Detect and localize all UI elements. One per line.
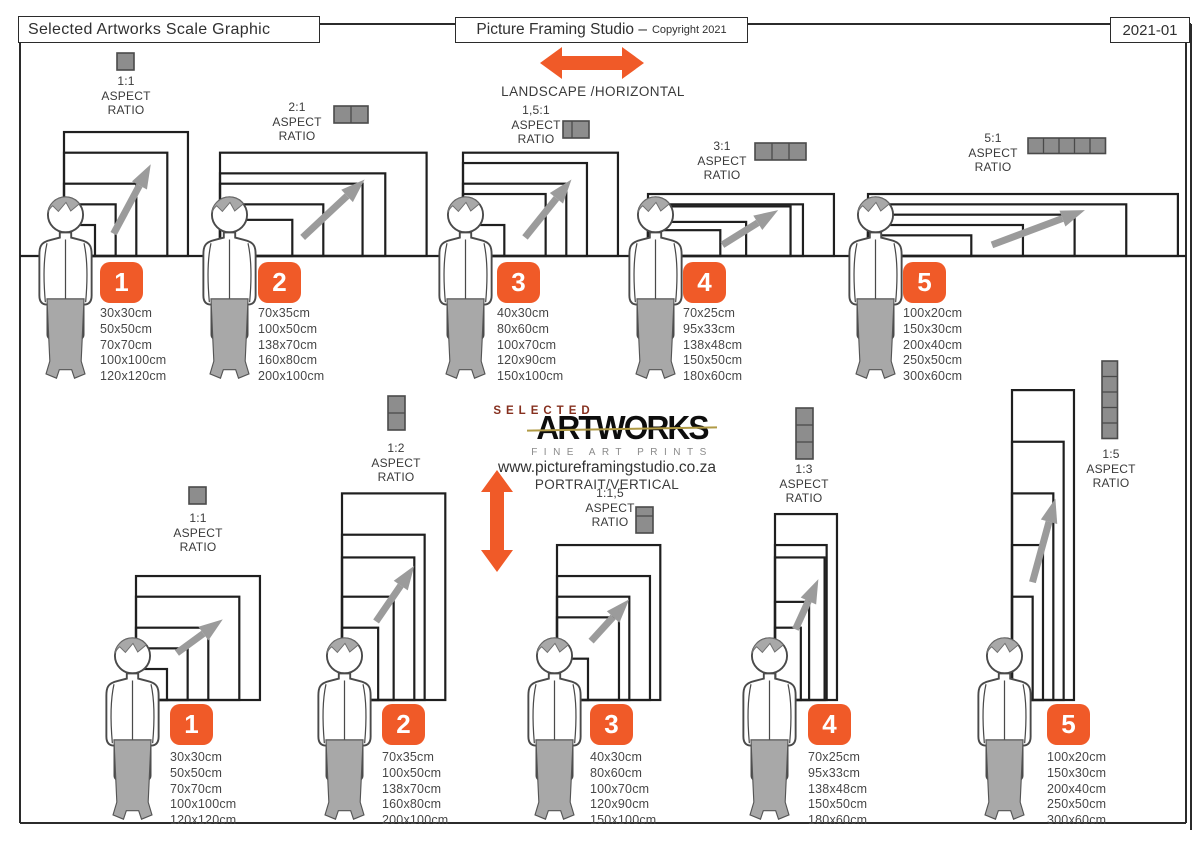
- size-item: 150x30cm: [1047, 766, 1106, 782]
- size-item: 100x50cm: [258, 322, 324, 338]
- group-number-badge: 4: [808, 704, 851, 745]
- aspect-ratio-icon: [117, 53, 134, 70]
- size-list: 70x25cm95x33cm138x48cm150x50cm180x60cm: [683, 306, 742, 385]
- scale-arrow-shaft: [376, 586, 401, 622]
- copyright-text: Copyright 2021: [652, 24, 727, 36]
- size-item: 138x70cm: [382, 782, 448, 798]
- group-number-badge: 1: [170, 704, 213, 745]
- size-item: 100x70cm: [590, 782, 656, 798]
- ratio-word: RATIO: [476, 132, 596, 147]
- scale-arrow: [591, 599, 629, 641]
- ratio-icon-body: [1102, 361, 1118, 439]
- group-number-badge: 3: [590, 704, 633, 745]
- ratio-word: RATIO: [1051, 476, 1171, 491]
- size-item: 250x50cm: [903, 353, 962, 369]
- size-item: 70x25cm: [683, 306, 742, 322]
- size-item: 80x60cm: [497, 322, 563, 338]
- ratio-word: ASPECT: [744, 477, 864, 492]
- size-item: 120x90cm: [497, 353, 563, 369]
- size-item: 250x50cm: [1047, 797, 1106, 813]
- ratio-word: RATIO: [662, 168, 782, 183]
- scale-arrow-head: [801, 579, 819, 604]
- landscape-direction-label: LANDSCAPE /HORIZONTAL: [501, 84, 685, 99]
- size-item: 180x60cm: [683, 369, 742, 385]
- size-item: 150x50cm: [808, 797, 867, 813]
- group-number-badge: 1: [100, 262, 143, 303]
- size-item: 30x30cm: [170, 750, 236, 766]
- portrait-group-5: [1012, 361, 1118, 700]
- scale-arrow: [722, 210, 778, 245]
- frame-rect: [463, 153, 618, 256]
- ratio-value: 1:1: [138, 511, 258, 526]
- ratio-word: ASPECT: [662, 154, 782, 169]
- size-item: 100x20cm: [903, 306, 962, 322]
- size-item: 40x30cm: [590, 750, 656, 766]
- size-item: 180x60cm: [808, 813, 867, 829]
- aspect-ratio-label: 1,5:1ASPECTRATIO: [476, 103, 596, 147]
- person-figure: [528, 638, 580, 819]
- size-item: 100x100cm: [170, 797, 236, 813]
- size-item: 138x70cm: [258, 338, 324, 354]
- person-figure: [203, 197, 255, 378]
- ratio-value: 1:3: [744, 462, 864, 477]
- aspect-ratio-label: 1:2ASPECTRATIO: [336, 441, 456, 485]
- size-item: 150x30cm: [903, 322, 962, 338]
- ratio-icon-body: [189, 487, 206, 504]
- aspect-ratio-icon: [189, 487, 206, 504]
- frame-rect: [64, 132, 188, 256]
- size-item: 120x120cm: [100, 369, 166, 385]
- ratio-word: ASPECT: [550, 501, 670, 516]
- group-number-badge: 2: [382, 704, 425, 745]
- scale-arrow-shaft: [722, 223, 757, 245]
- studio-title-box: Picture Framing Studio – Copyright 2021: [455, 17, 748, 43]
- ratio-word: RATIO: [336, 470, 456, 485]
- size-list: 70x35cm100x50cm138x70cm160x80cm200x100cm: [258, 306, 324, 385]
- size-item: 138x48cm: [683, 338, 742, 354]
- ratio-word: RATIO: [138, 540, 258, 555]
- edition-code-box: 2021-01: [1110, 17, 1190, 43]
- size-item: 100x100cm: [100, 353, 166, 369]
- aspect-ratio-label: 3:1ASPECTRATIO: [662, 139, 782, 183]
- ratio-value: 1,5:1: [476, 103, 596, 118]
- size-item: 138x48cm: [808, 782, 867, 798]
- aspect-ratio-label: 1:1ASPECTRATIO: [138, 511, 258, 555]
- ratio-word: RATIO: [237, 129, 357, 144]
- size-list: 100x20cm150x30cm200x40cm250x50cm300x60cm: [1047, 750, 1106, 829]
- size-item: 95x33cm: [808, 766, 867, 782]
- size-item: 70x25cm: [808, 750, 867, 766]
- aspect-ratio-icon: [388, 396, 405, 430]
- ratio-value: 1:1,5: [550, 486, 670, 501]
- scale-arrow-shaft: [303, 196, 347, 237]
- size-item: 300x60cm: [1047, 813, 1106, 829]
- scale-arrow-head: [132, 164, 151, 189]
- ratio-icon-body: [796, 408, 813, 459]
- size-item: 70x70cm: [100, 338, 166, 354]
- size-item: 300x60cm: [903, 369, 962, 385]
- scale-arrow-head: [1041, 499, 1057, 524]
- ratio-word: ASPECT: [237, 115, 357, 130]
- ratio-word: RATIO: [66, 103, 186, 118]
- size-item: 200x40cm: [903, 338, 962, 354]
- size-item: 150x50cm: [683, 353, 742, 369]
- portrait-group-3: [557, 507, 660, 700]
- size-item: 30x30cm: [100, 306, 166, 322]
- ratio-word: ASPECT: [66, 89, 186, 104]
- size-item: 200x40cm: [1047, 782, 1106, 798]
- portrait-direction-arrow-icon: [481, 470, 513, 572]
- size-item: 120x120cm: [170, 813, 236, 829]
- person-figure: [318, 638, 370, 819]
- ratio-word: ASPECT: [138, 526, 258, 541]
- ratio-value: 2:1: [237, 100, 357, 115]
- size-list: 30x30cm50x50cm70x70cm100x100cm120x120cm: [100, 306, 166, 385]
- page-title: Selected Artworks Scale Graphic: [28, 21, 270, 39]
- group-number-badge: 3: [497, 262, 540, 303]
- logo-tagline: FINE ART PRINTS: [531, 447, 713, 458]
- scale-arrow: [795, 579, 818, 629]
- ratio-word: ASPECT: [1051, 462, 1171, 477]
- ratio-value: 1:5: [1051, 447, 1171, 462]
- size-item: 150x100cm: [497, 369, 563, 385]
- size-item: 70x35cm: [258, 306, 324, 322]
- scale-arrow: [376, 566, 414, 622]
- scale-arrow-shaft: [177, 634, 203, 653]
- group-number-badge: 2: [258, 262, 301, 303]
- aspect-ratio-label: 1:5ASPECTRATIO: [1051, 447, 1171, 491]
- ratio-word: ASPECT: [336, 456, 456, 471]
- group-number-badge: 5: [903, 262, 946, 303]
- scale-arrow-head: [1059, 210, 1084, 226]
- size-item: 50x50cm: [100, 322, 166, 338]
- website-url: www.pictureframingstudio.co.za: [498, 459, 716, 477]
- ratio-value: 1:1: [66, 74, 186, 89]
- aspect-ratio-label: 5:1ASPECTRATIO: [933, 131, 1053, 175]
- ratio-word: RATIO: [933, 160, 1053, 175]
- scale-arrow-shaft: [795, 601, 808, 629]
- ratio-word: RATIO: [744, 491, 864, 506]
- group-number-badge: 4: [683, 262, 726, 303]
- scale-graphic-page: Selected Artworks Scale Graphic Picture …: [0, 0, 1200, 842]
- aspect-ratio-icon: [1102, 361, 1118, 439]
- aspect-ratio-label: 1:1ASPECTRATIO: [66, 74, 186, 118]
- scale-arrow-shaft: [591, 617, 613, 641]
- size-item: 100x70cm: [497, 338, 563, 354]
- scale-arrow-shaft: [1032, 522, 1049, 583]
- landscape-direction-arrow-icon: [540, 47, 644, 79]
- size-item: 160x80cm: [382, 797, 448, 813]
- scale-arrow: [525, 180, 571, 238]
- size-list: 70x25cm95x33cm138x48cm150x50cm180x60cm: [808, 750, 867, 829]
- aspect-ratio-label: 1:3ASPECTRATIO: [744, 462, 864, 506]
- ratio-value: 1:2: [336, 441, 456, 456]
- ratio-value: 5:1: [933, 131, 1053, 146]
- person-figure: [106, 638, 158, 819]
- size-item: 40x30cm: [497, 306, 563, 322]
- ratio-word: RATIO: [550, 515, 670, 530]
- person-figure: [978, 638, 1030, 819]
- size-list: 70x35cm100x50cm138x70cm160x80cm200x100cm: [382, 750, 448, 829]
- size-list: 40x30cm80x60cm100x70cm120x90cm150x100cm: [590, 750, 656, 829]
- ratio-value: 3:1: [662, 139, 782, 154]
- size-list: 40x30cm80x60cm100x70cm120x90cm150x100cm: [497, 306, 563, 385]
- group-number-badge: 5: [1047, 704, 1090, 745]
- size-item: 95x33cm: [683, 322, 742, 338]
- size-item: 70x35cm: [382, 750, 448, 766]
- size-item: 70x70cm: [170, 782, 236, 798]
- scale-arrow-shaft: [525, 198, 556, 237]
- scale-arrow: [177, 619, 223, 652]
- size-list: 100x20cm150x30cm200x40cm250x50cm300x60cm: [903, 306, 962, 385]
- ratio-icon-body: [117, 53, 134, 70]
- ratio-word: ASPECT: [933, 146, 1053, 161]
- size-item: 50x50cm: [170, 766, 236, 782]
- ratio-word: ASPECT: [476, 118, 596, 133]
- scale-arrow: [303, 180, 365, 238]
- size-item: 120x90cm: [590, 797, 656, 813]
- studio-title: Picture Framing Studio –: [476, 21, 647, 39]
- aspect-ratio-label: 2:1ASPECTRATIO: [237, 100, 357, 144]
- size-item: 100x50cm: [382, 766, 448, 782]
- frame-rect: [868, 204, 1126, 256]
- edition-code: 2021-01: [1122, 22, 1177, 39]
- size-item: 80x60cm: [590, 766, 656, 782]
- frame-rect: [342, 535, 425, 700]
- aspect-ratio-label: 1:1,5ASPECTRATIO: [550, 486, 670, 530]
- size-item: 160x80cm: [258, 353, 324, 369]
- person-figure: [629, 197, 681, 378]
- size-item: 100x20cm: [1047, 750, 1106, 766]
- size-item: 150x100cm: [590, 813, 656, 829]
- aspect-ratio-icon: [796, 408, 813, 459]
- scale-arrow-shaft: [992, 219, 1062, 245]
- page-title-box: Selected Artworks Scale Graphic: [18, 16, 320, 43]
- size-list: 30x30cm50x50cm70x70cm100x100cm120x120cm: [170, 750, 236, 829]
- size-item: 200x100cm: [382, 813, 448, 829]
- size-item: 200x100cm: [258, 369, 324, 385]
- scale-arrow: [114, 164, 151, 233]
- person-figure: [743, 638, 795, 819]
